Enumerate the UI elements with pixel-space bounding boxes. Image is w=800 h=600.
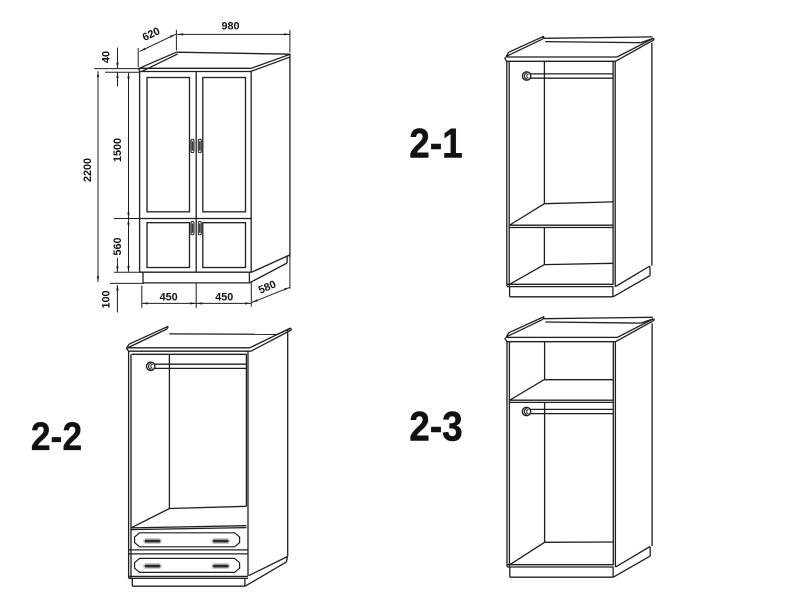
svg-text:560: 560 xyxy=(112,237,124,255)
svg-text:2-3: 2-3 xyxy=(409,402,463,449)
svg-text:100: 100 xyxy=(100,290,112,308)
svg-text:980: 980 xyxy=(221,20,239,32)
svg-text:450: 450 xyxy=(215,292,233,304)
svg-text:620: 620 xyxy=(141,25,162,44)
svg-text:2-1: 2-1 xyxy=(409,119,462,166)
svg-text:2200: 2200 xyxy=(82,158,94,182)
svg-text:2-2: 2-2 xyxy=(31,415,83,459)
svg-text:450: 450 xyxy=(160,292,178,304)
svg-text:40: 40 xyxy=(101,51,113,63)
svg-text:1500: 1500 xyxy=(112,138,124,162)
